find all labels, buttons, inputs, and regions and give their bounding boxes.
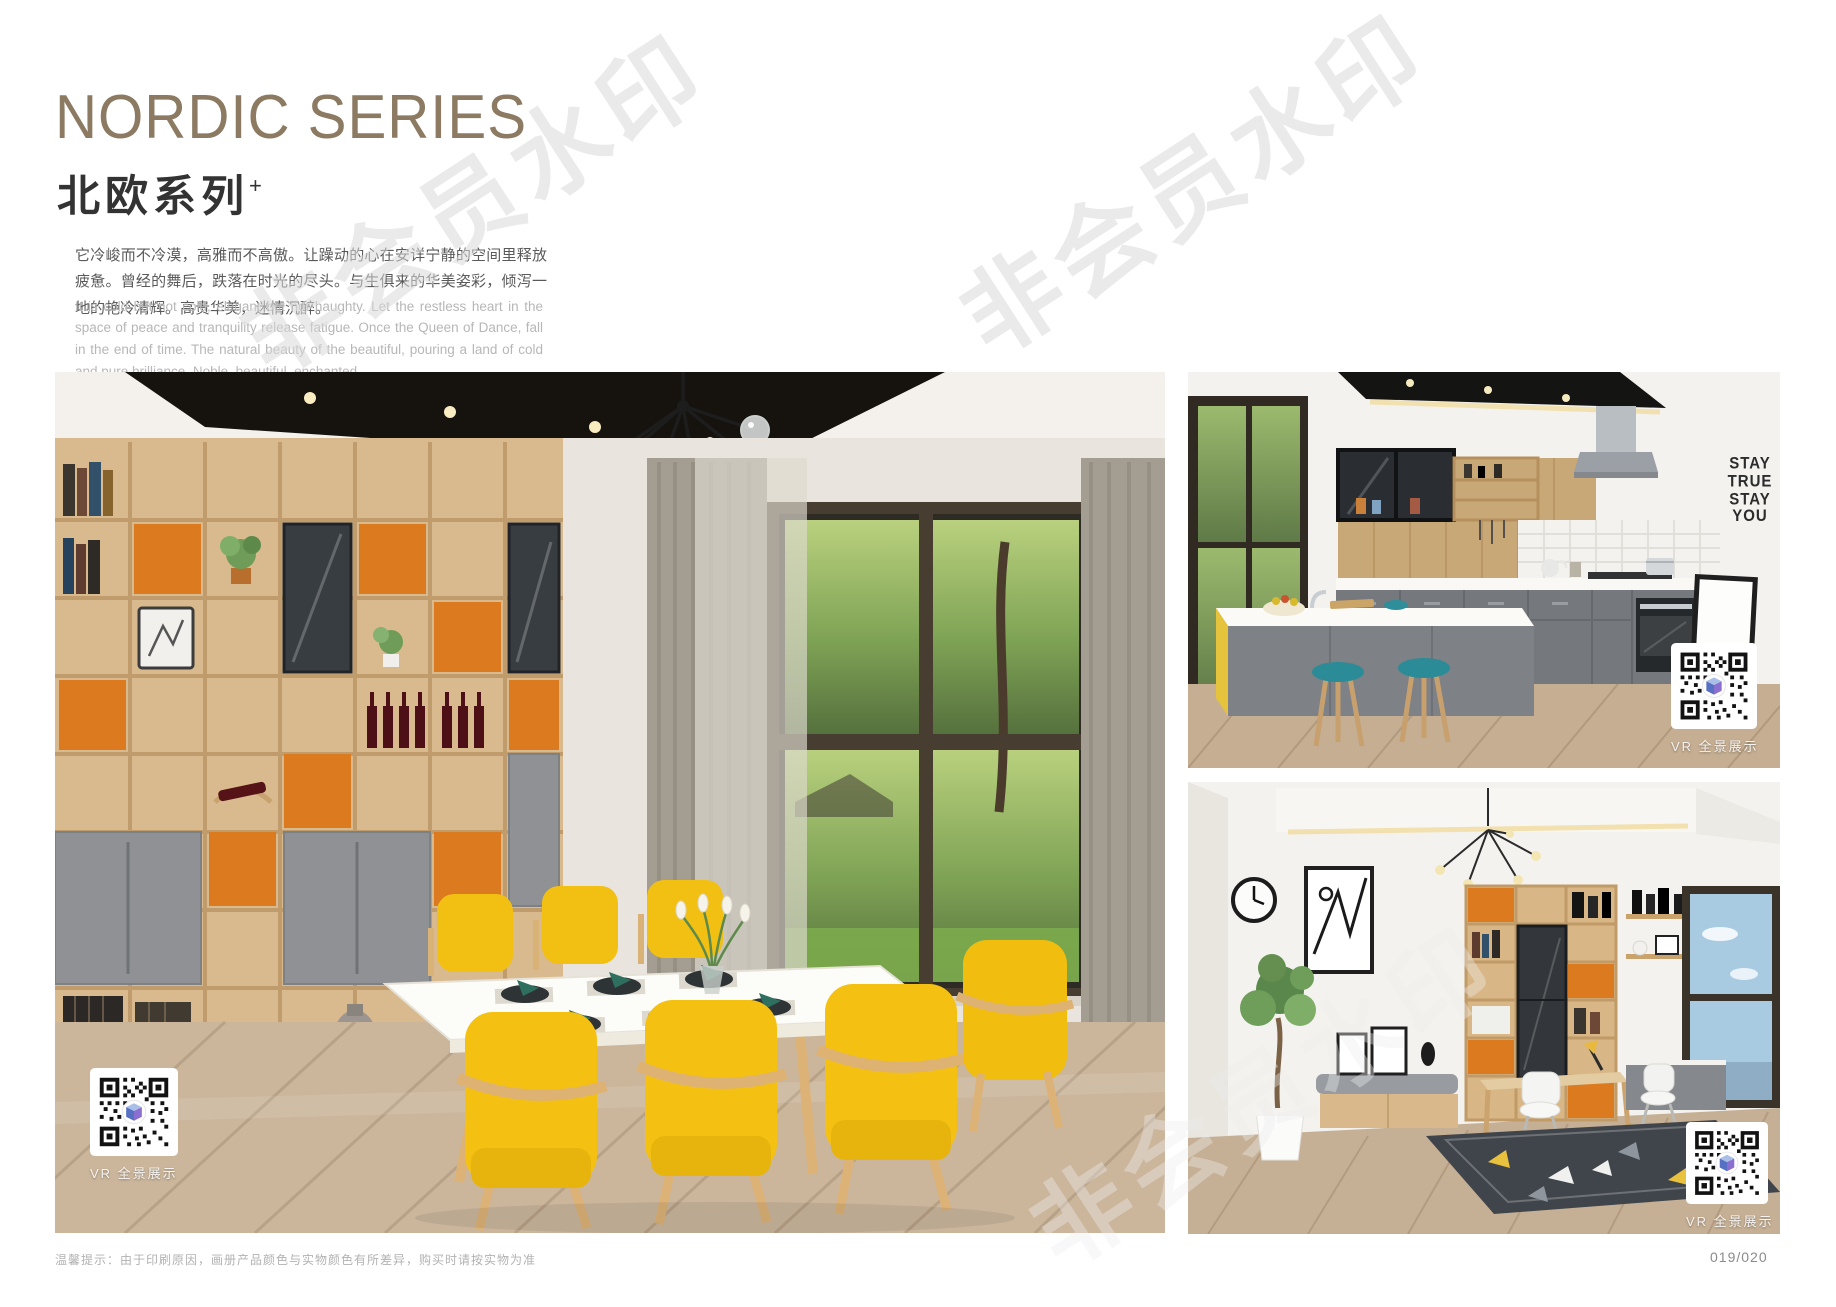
title-plus-mark: + [249, 173, 262, 198]
watermark-text: 非会员水印 [929, 0, 1451, 383]
kitchen-island [1216, 592, 1534, 716]
vr-panorama-label: VR 全景展示 [1686, 1211, 1774, 1230]
wall-clock [1233, 879, 1275, 921]
qr-code-icon [1686, 1122, 1768, 1204]
dining-room-photo [55, 372, 1165, 1233]
vr-panorama-label: VR 全景展示 [1671, 736, 1759, 755]
footer-print-note: 温馨提示：由于印刷原因，画册产品颜色与实物颜色有所差异，购买时请按实物为准 [55, 1251, 536, 1268]
series-title-zh-text: 北欧系列 [57, 173, 249, 221]
qr-badge: VR 全景展示 [1671, 643, 1759, 755]
description-en: It is cold but not cold, elegant but not… [75, 296, 543, 383]
qr-badge: VR 全景展示 [90, 1068, 178, 1182]
kitchen-wall-text: STAY TRUE STAY YOU [1722, 455, 1778, 526]
series-title-en: NORDIC SERIES [55, 82, 527, 153]
series-title-zh: 北欧系列+ [57, 162, 262, 224]
catalog-page: NORDIC SERIES 北欧系列+ 它冷峻而不冷漠，高雅而不高傲。让躁动的心… [0, 0, 1836, 1307]
qr-code-icon [90, 1068, 178, 1156]
window-and-curtains [563, 438, 1165, 1058]
page-number: 019/020 [1710, 1249, 1768, 1265]
qr-badge: VR 全景展示 [1686, 1122, 1774, 1230]
dining-room-scene [55, 372, 1165, 1233]
abstract-art-frame [1306, 868, 1372, 972]
vr-panorama-label: VR 全景展示 [90, 1163, 178, 1182]
qr-code-icon [1671, 643, 1757, 729]
